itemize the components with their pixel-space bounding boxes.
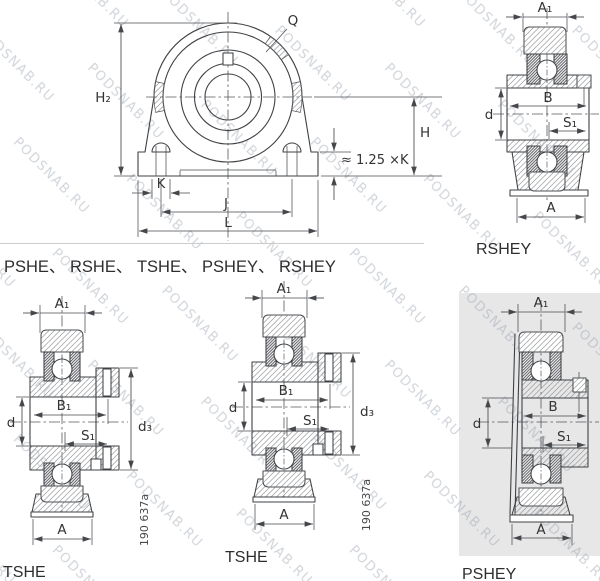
dim-label-h: H [420, 125, 430, 141]
tshe-title: TSHE [3, 564, 46, 581]
dim-label-h2: H₂ [95, 90, 111, 106]
rshey-dim-s1: S₁ [563, 115, 577, 131]
relief-step [91, 459, 101, 470]
tshe-dim-s1: S₁ [81, 428, 95, 444]
seal-block [550, 352, 561, 380]
dim-label-base-thickness: ≈ 1.25 ×K [341, 153, 409, 168]
setscrew-detail [223, 53, 233, 65]
bearing-units-technical-drawing: PODSNAB.RU PODSNAB.RU [0, 0, 600, 581]
pshey-dim-a: A [536, 522, 546, 538]
seal-block [550, 455, 561, 483]
pshey-dim-d: d [473, 416, 482, 432]
snap-ring-groove [103, 369, 111, 396]
pshey-dim-a1: A₁ [534, 295, 549, 311]
seal-block [522, 352, 533, 380]
tshe-dim-b1: B₁ [57, 398, 72, 414]
tshe-dim-d3: d₃ [138, 419, 152, 435]
tshe-ref-number: 190 637a [138, 494, 151, 546]
pshey-title: PSHEY [462, 566, 517, 581]
series-names: PSHE、 RSHE、 TSHE、 PSHEY、 RSHEY [4, 258, 336, 276]
catalog-drawing-page: PODSNAB.RU PODSNAB.RU [0, 0, 600, 581]
ring-wedge-right [292, 82, 302, 113]
rshey-dim-a: A [546, 200, 556, 216]
pshey-dim-s1: S₁ [557, 429, 571, 445]
rshey-dim-a1: A₁ [538, 0, 553, 16]
tshe-dim-a: A [57, 522, 67, 538]
rshey-title: RSHEY [476, 241, 531, 258]
dim-label-j: J [223, 196, 228, 212]
pshey-base-plate [510, 515, 573, 522]
ring-wedge-left [154, 82, 164, 113]
tshe-dim-d: d [7, 415, 16, 431]
snap-ring-groove [103, 447, 111, 469]
tshe-base-plate [31, 512, 93, 517]
rshey-dim-d: d [485, 107, 494, 123]
seal-block [522, 455, 533, 483]
dim-label-q: Q [288, 13, 299, 29]
pshey-dim-b: B [548, 399, 557, 415]
rshey-dim-b: B [543, 90, 552, 106]
tshe-dim-a1: A₁ [55, 296, 70, 312]
dim-label-l: L [224, 215, 232, 231]
